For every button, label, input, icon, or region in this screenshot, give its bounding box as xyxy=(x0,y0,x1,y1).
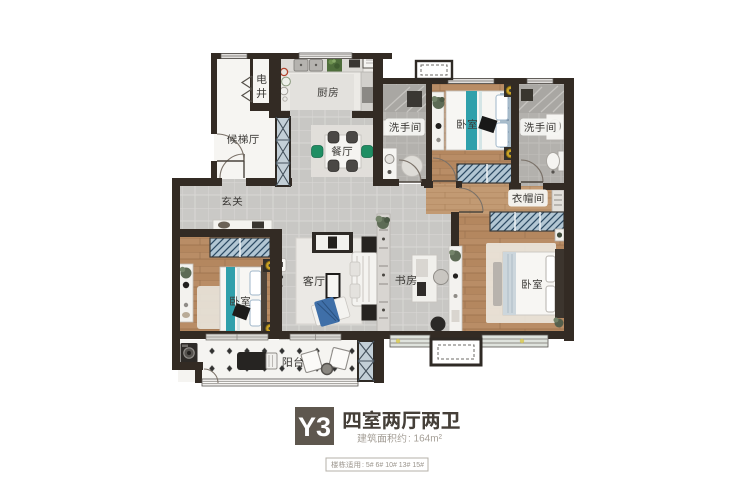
svg-text:Y3: Y3 xyxy=(298,412,331,442)
svg-text:: 5# 6# 10# 13# 15#: : 5# 6# 10# 13# 15# xyxy=(362,462,424,469)
svg-text:: 164m²: : 164m² xyxy=(408,434,443,445)
